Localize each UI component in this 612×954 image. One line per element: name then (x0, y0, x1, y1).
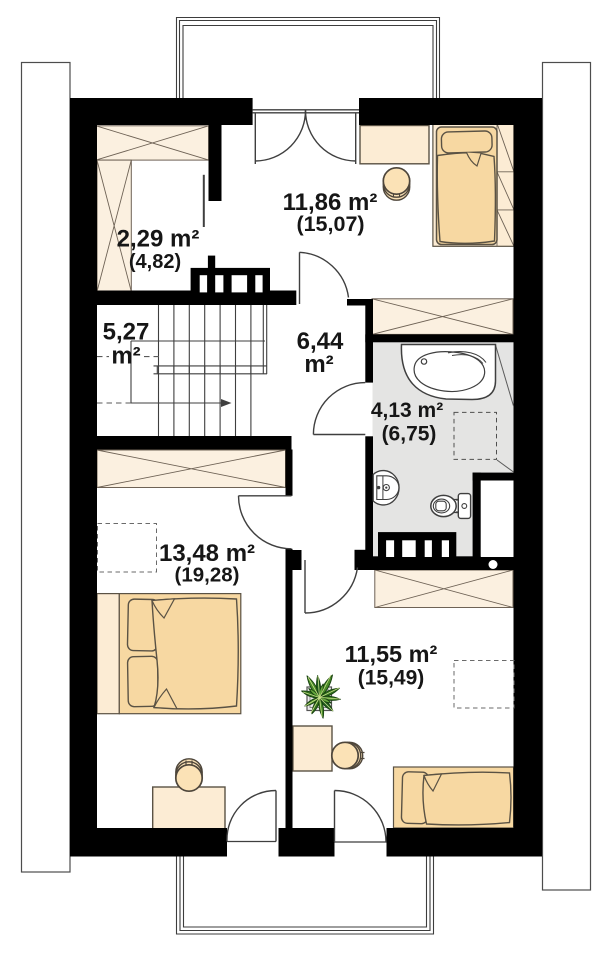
svg-text:(19,28): (19,28) (175, 564, 240, 587)
svg-text:m²: m² (111, 343, 140, 370)
svg-text:(15,07): (15,07) (296, 212, 364, 236)
svg-text:(15,49): (15,49) (358, 667, 425, 690)
svg-text:4,13 m²: 4,13 m² (371, 399, 443, 422)
svg-text:11,55 m²: 11,55 m² (345, 641, 438, 667)
svg-text:2,29 m²: 2,29 m² (117, 226, 200, 253)
svg-text:(4,82): (4,82) (129, 251, 181, 273)
svg-text:(6,75): (6,75) (382, 423, 437, 446)
svg-text:m²: m² (304, 351, 333, 378)
svg-text:5,27: 5,27 (103, 319, 150, 346)
